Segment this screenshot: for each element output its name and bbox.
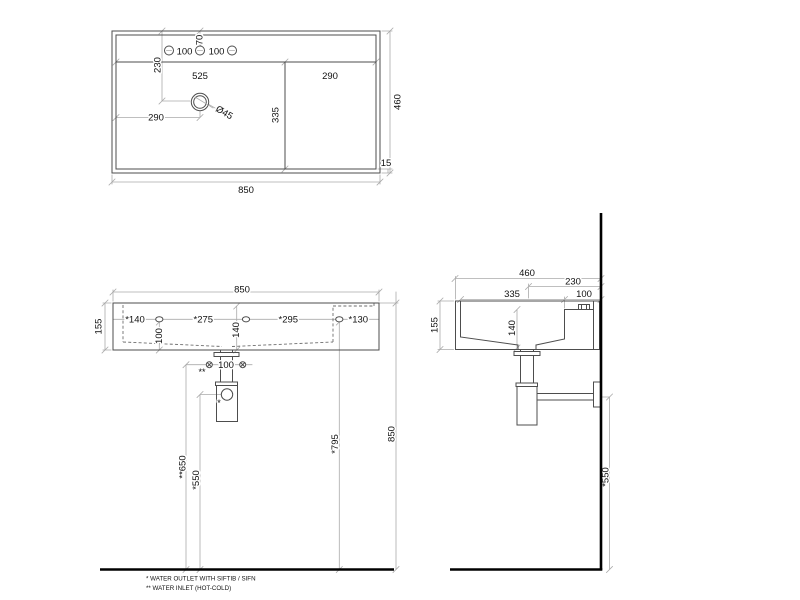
dim-top-drain-from-top: 230: [153, 57, 164, 73]
washbasin-technical-drawing: 850 460 15 525 290 335 290 230 70 100 10…: [0, 0, 800, 600]
top-view-dimension-lines: [109, 28, 393, 185]
dim-side-inner-length: 335: [504, 289, 520, 300]
dim-front-height: 155: [94, 319, 105, 335]
dim-outlet-height: *550: [191, 470, 202, 490]
side-view-dimension-lines: [437, 276, 613, 573]
dim-top-hole-gap-right: 100: [209, 47, 225, 58]
dim-front-width: 850: [234, 285, 250, 296]
dim-top-drain-diameter: Ø45: [213, 104, 234, 123]
fixing-slot-left: [156, 317, 163, 322]
top-view-outline: [112, 31, 380, 173]
note-water-inlet: ** WATER INLET (HOT-COLD): [146, 585, 231, 592]
dim-front-rim-height: 850: [387, 426, 398, 442]
technical-drawing-sheet: 850 460 15 525 290 335 290 230 70 100 10…: [0, 0, 800, 600]
dim-slot-floor-height: *795: [330, 434, 341, 454]
dim-side-drain-from-wall: 230: [565, 277, 581, 288]
dim-slot-3: *295: [279, 315, 299, 326]
dim-front-slot-height: 100: [154, 328, 165, 344]
side-view: 460 230 335 100 155 140 *550: [430, 268, 613, 573]
outlet-footnote-mark: *: [217, 398, 221, 408]
dim-top-deck-width: 290: [322, 71, 338, 82]
front-view-dimension-lines: [102, 289, 399, 573]
dim-top-hole-gap-left: 100: [177, 47, 193, 58]
dim-top-hole-offset: 70: [195, 35, 206, 46]
note-water-outlet: * WATER OUTLET WITH SIFTIB / SIFN: [146, 576, 256, 583]
footnotes: * WATER OUTLET WITH SIFTIB / SIFN ** WAT…: [146, 576, 256, 593]
top-view: 850 460 15 525 290 335 290 230 70 100 10…: [109, 28, 404, 196]
wall-floor-lines: [100, 213, 602, 570]
dim-top-basin-width: 525: [192, 71, 208, 82]
siphon-outlet-circle: [221, 389, 232, 400]
side-view-outline: [456, 301, 600, 350]
dim-top-rim: 15: [381, 158, 392, 169]
dim-side-height: 155: [430, 317, 441, 333]
dim-slot-1: *140: [125, 315, 145, 326]
front-view: 850 155 *140 *275 *295 *130 100 140 100 …: [94, 285, 400, 573]
fixing-slot-center: [242, 317, 249, 322]
dim-top-width: 850: [238, 185, 254, 196]
dim-inlet-gap: 100: [218, 360, 234, 371]
dim-side-depth: 460: [519, 268, 535, 279]
dim-inlet-height: **650: [178, 455, 189, 478]
inlet-footnote-mark: **: [198, 367, 206, 377]
dim-top-basin-depth: 335: [271, 107, 282, 123]
dim-side-deck-depth: 100: [576, 289, 592, 300]
dim-slot-2: *275: [194, 315, 214, 326]
side-trap-outline: [514, 350, 601, 426]
dim-top-drain-from-left: 290: [148, 113, 164, 124]
dim-slot-4: *130: [349, 315, 369, 326]
dim-side-inner-depth: 140: [507, 320, 518, 336]
dim-front-inner-depth: 140: [231, 322, 242, 338]
fixing-slot-right: [336, 317, 343, 322]
dim-top-depth: 460: [393, 94, 404, 110]
